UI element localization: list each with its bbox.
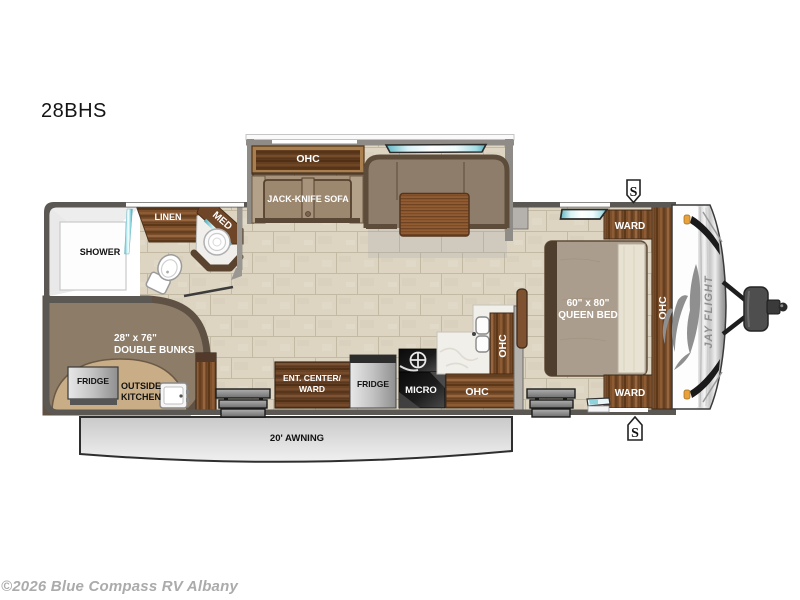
svg-text:WARD: WARD (299, 384, 325, 394)
svg-text:S: S (630, 185, 638, 200)
svg-text:LINEN: LINEN (155, 212, 182, 222)
svg-text:S: S (631, 426, 639, 441)
svg-text:OHC: OHC (296, 153, 320, 165)
svg-text:28" x 76": 28" x 76" (114, 333, 157, 344)
svg-text:FRIDGE: FRIDGE (357, 379, 389, 389)
svg-text:DOUBLE BUNKS: DOUBLE BUNKS (114, 345, 195, 356)
svg-text:KITCHEN: KITCHEN (121, 392, 161, 402)
svg-text:FRIDGE: FRIDGE (77, 376, 109, 386)
svg-text:20' AWNING: 20' AWNING (270, 433, 324, 444)
svg-text:QUEEN BED: QUEEN BED (558, 310, 617, 321)
svg-text:ENT. CENTER/: ENT. CENTER/ (283, 373, 342, 383)
svg-text:WARD: WARD (615, 388, 646, 399)
svg-text:WARD: WARD (615, 221, 646, 232)
svg-text:JAY FLIGHT: JAY FLIGHT (703, 275, 715, 348)
svg-text:OHC: OHC (497, 334, 509, 358)
svg-text:MICRO: MICRO (405, 385, 437, 396)
svg-text:OUTSIDE: OUTSIDE (121, 381, 161, 391)
svg-text:JACK-KNIFE SOFA: JACK-KNIFE SOFA (267, 194, 349, 204)
svg-text:OHC: OHC (465, 386, 489, 398)
svg-text:SHOWER: SHOWER (80, 247, 121, 257)
svg-text:60" x 80": 60" x 80" (567, 298, 610, 309)
